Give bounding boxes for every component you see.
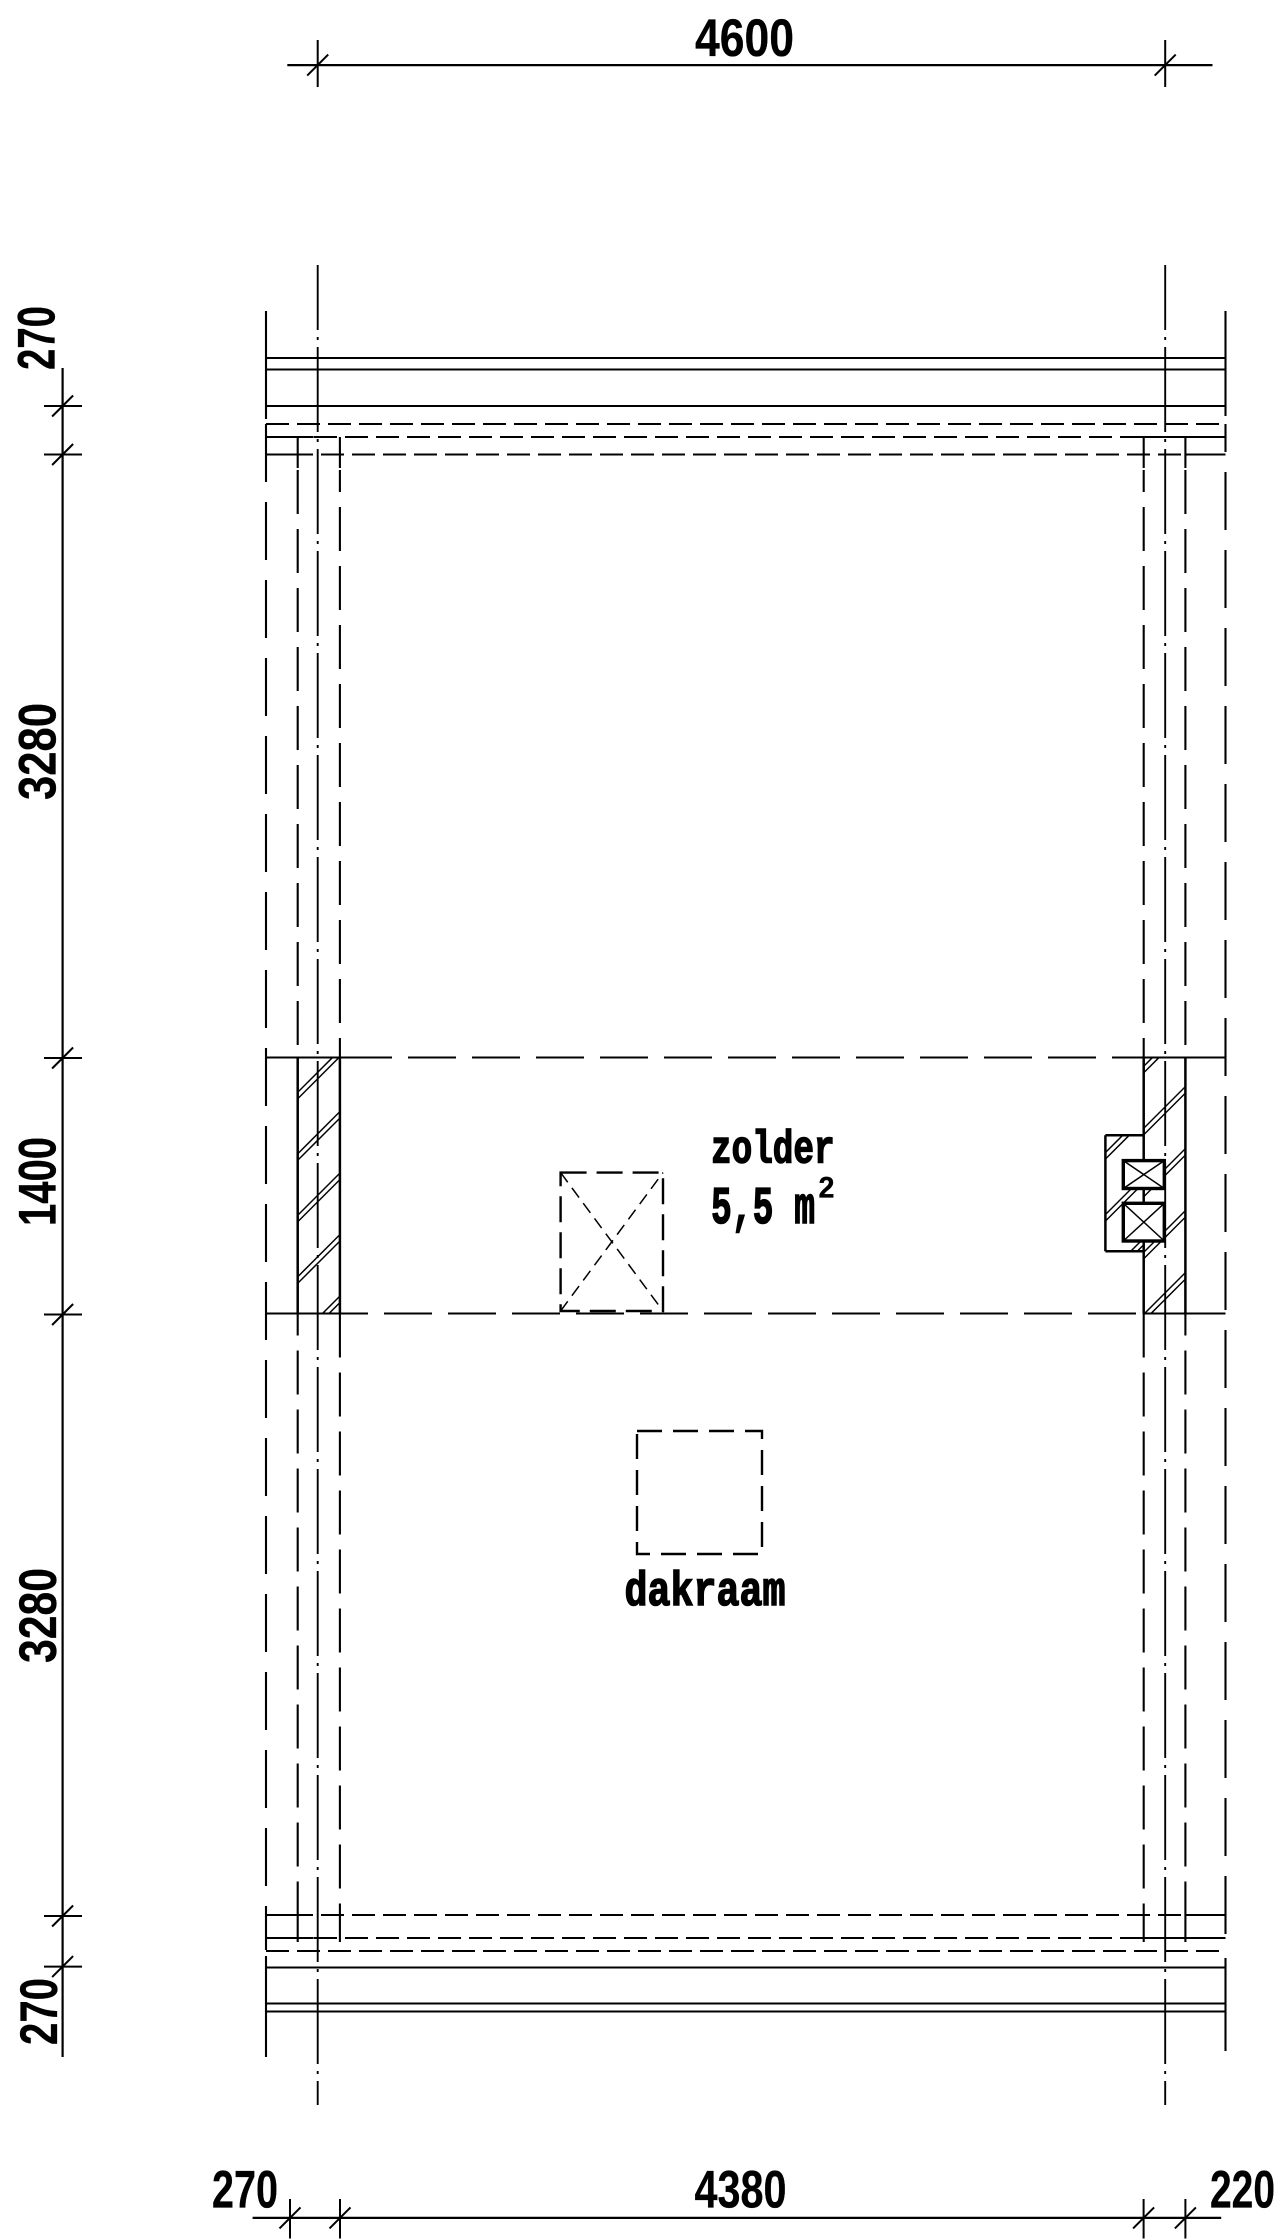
svg-text:4380: 4380 bbox=[695, 2161, 787, 2220]
svg-text:3280: 3280 bbox=[9, 1568, 68, 1663]
svg-text:270: 270 bbox=[8, 306, 67, 370]
svg-text:1400: 1400 bbox=[9, 1137, 68, 1226]
svg-text:4600: 4600 bbox=[695, 9, 794, 68]
svg-text:5,5 m: 5,5 m bbox=[711, 1179, 815, 1239]
svg-text:zolder: zolder bbox=[711, 1125, 835, 1177]
svg-text:2: 2 bbox=[819, 1172, 835, 1205]
svg-text:270: 270 bbox=[212, 2161, 278, 2220]
svg-text:3280: 3280 bbox=[9, 703, 68, 800]
svg-text:220: 220 bbox=[1210, 2161, 1275, 2220]
svg-text:270: 270 bbox=[10, 1978, 69, 2045]
svg-text:dakraam: dakraam bbox=[625, 1566, 786, 1620]
